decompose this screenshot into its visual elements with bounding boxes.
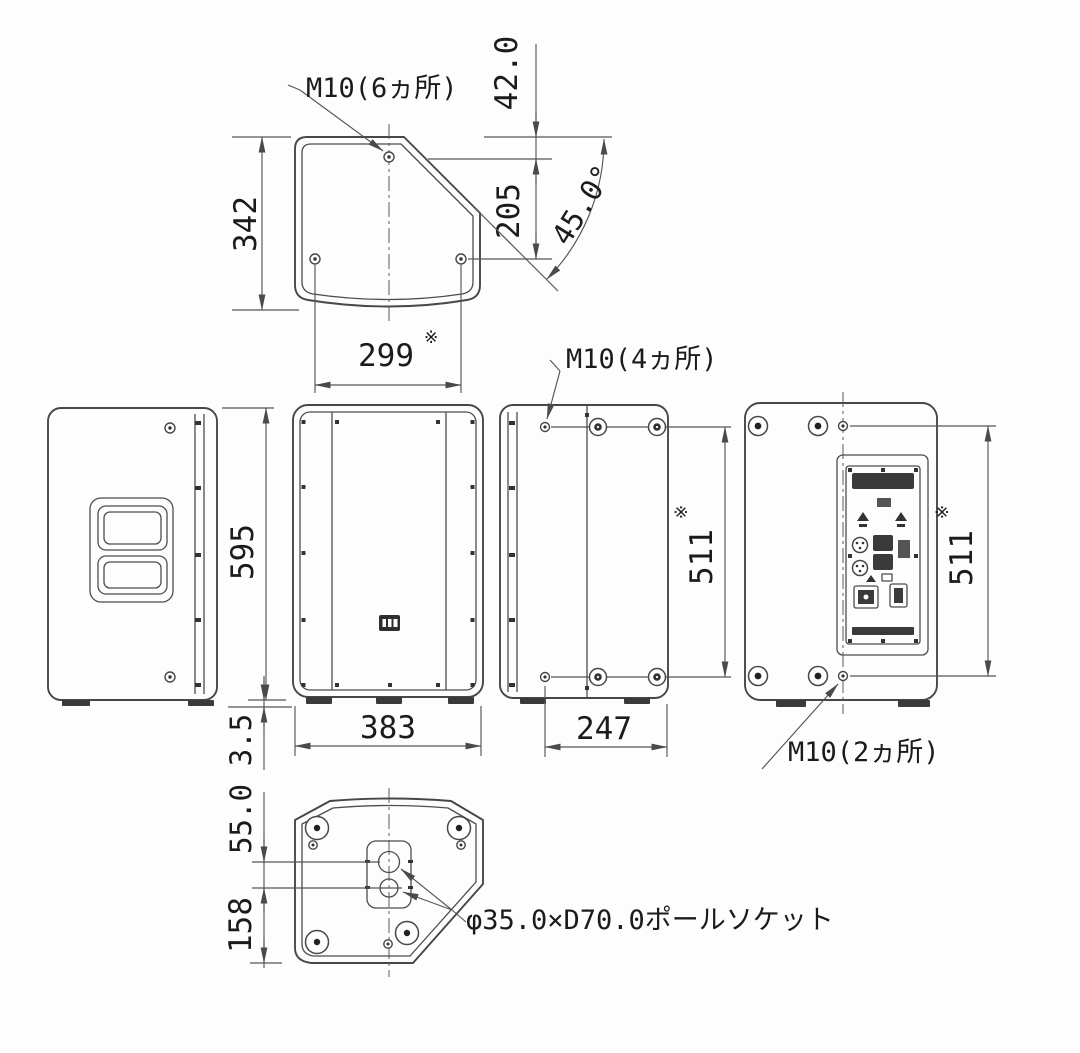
left-side-view — [48, 408, 217, 706]
technical-drawing-page: M10(6ヵ所) 342 42.0 205 45.0° 299 ※ — [0, 0, 1080, 1053]
dim-42-label: 42.0 — [489, 36, 525, 111]
m10-screw — [456, 254, 466, 264]
dim-247: 247 — [545, 686, 667, 757]
dim-247-label: 247 — [576, 711, 632, 747]
rear-view — [745, 392, 937, 714]
dim-511-rear-ref: ※ — [933, 505, 953, 519]
m10-screw — [839, 422, 848, 431]
m10-2-callout: M10(2ヵ所) — [762, 684, 940, 769]
foot — [188, 700, 214, 706]
jbl-logo-badge — [379, 615, 400, 631]
foot-bottom — [448, 817, 471, 840]
connector-block — [898, 540, 910, 558]
dim-205-label: 205 — [491, 183, 527, 239]
dim-158-label: 158 — [223, 897, 259, 953]
grille-edge-ticks — [509, 421, 515, 687]
handle-screw — [749, 417, 768, 436]
dim-342-label: 342 — [228, 196, 264, 252]
suspension-screw — [590, 669, 607, 686]
heatsink-vent — [852, 473, 914, 489]
dim-511-side-ref: ※ — [672, 505, 692, 519]
suspension-screw — [649, 669, 666, 686]
foot — [898, 700, 930, 707]
foot — [776, 700, 806, 707]
gain-knob-marker — [895, 512, 907, 521]
connector-block — [873, 535, 893, 551]
grille-screws — [302, 420, 475, 687]
bottom-view — [295, 788, 483, 977]
dim-342: 342 — [228, 137, 299, 310]
dim-3-5: 3.5 — [224, 676, 292, 770]
panel-bottom-bar — [852, 627, 914, 635]
dim-595: 595 — [222, 408, 274, 700]
m10-4-callout: M10(4ヵ所) — [547, 344, 718, 419]
m10-6-label: M10(6ヵ所) — [306, 73, 458, 104]
xlr-input — [853, 561, 868, 576]
m10-screw — [384, 152, 394, 162]
m10-6-callout: M10(6ヵ所) — [288, 73, 458, 151]
handle-screw — [809, 417, 828, 436]
foot — [306, 697, 332, 704]
amplifier-panel — [837, 455, 928, 655]
dim-3-5-label: 3.5 — [224, 714, 258, 766]
dim-511-side: 511 ※ — [672, 427, 725, 677]
side-handle — [90, 498, 173, 602]
grille-edge-ticks — [195, 421, 201, 687]
m10-screw — [384, 940, 392, 948]
xlr-input — [853, 538, 868, 553]
handle-screw — [809, 667, 828, 686]
dim-299: 299 ※ — [315, 265, 461, 393]
dim-595-label: 595 — [225, 524, 261, 580]
connector-block — [873, 554, 893, 570]
m10-screw — [309, 841, 317, 849]
foot-bottom — [306, 817, 329, 840]
dim-45-label: 45.0° — [545, 159, 620, 251]
foot-bottom — [306, 931, 329, 954]
front-view — [293, 405, 483, 704]
top-view — [295, 124, 480, 322]
power-switch — [890, 584, 907, 607]
m10-screw — [165, 672, 175, 682]
dim-511-rear: 511 ※ — [850, 426, 996, 676]
dim-511-side-label: 511 — [684, 529, 720, 585]
foot — [376, 697, 402, 704]
foot — [624, 698, 650, 704]
suspension-screw — [649, 419, 666, 436]
foot — [448, 697, 474, 704]
m10-screw — [839, 672, 848, 681]
dim-299-ref-mark: ※ — [424, 328, 438, 348]
power-inlet — [854, 586, 878, 608]
foot — [520, 698, 546, 704]
dim-299-label: 299 — [358, 338, 414, 374]
dim-383: 383 — [295, 706, 481, 756]
m10-4-label: M10(4ヵ所) — [566, 344, 718, 375]
panel-label — [877, 498, 891, 507]
suspension-screw — [590, 419, 607, 436]
m10-screw — [457, 841, 465, 849]
pole-socket-label: φ35.0×D70.0ポールソケット — [466, 905, 834, 936]
m10-2-label: M10(2ヵ所) — [788, 737, 940, 768]
foot — [62, 700, 90, 706]
gain-knob-marker — [857, 512, 869, 521]
foot-bottom — [396, 922, 419, 945]
handle-screw — [749, 667, 768, 686]
m10-screw — [165, 423, 175, 433]
m10-screw — [310, 254, 320, 264]
speaker-dimension-drawing: M10(6ヵ所) 342 42.0 205 45.0° 299 ※ — [0, 0, 1080, 1053]
m10-screw — [541, 673, 550, 682]
dim-55-label: 55.0 — [224, 784, 258, 854]
dim-511-rear-label: 511 — [944, 530, 980, 586]
m10-screw — [541, 423, 550, 432]
dim-383-label: 383 — [360, 710, 416, 746]
